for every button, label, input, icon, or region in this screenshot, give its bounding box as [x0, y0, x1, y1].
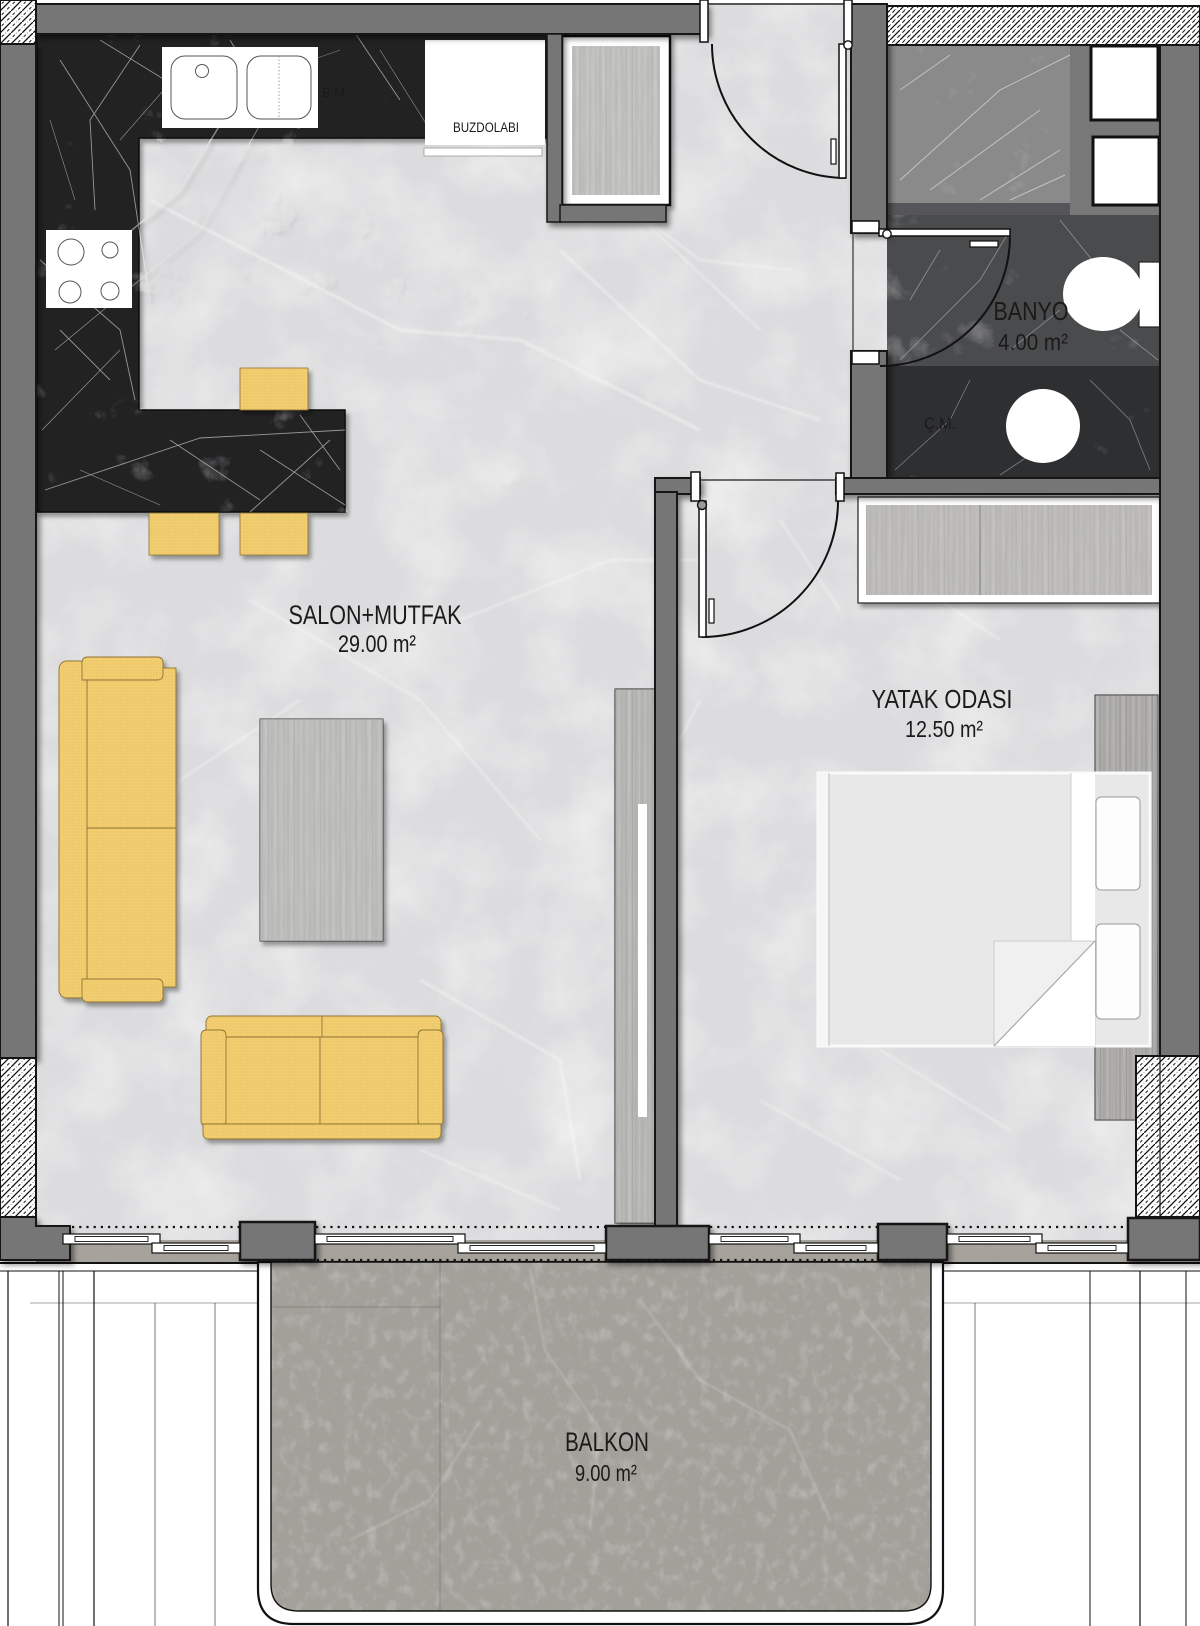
- svg-text:Ç.M.: Ç.M.: [924, 414, 956, 433]
- svg-text:12.50 m²: 12.50 m²: [905, 716, 983, 742]
- svg-text:4.00 m²: 4.00 m²: [998, 329, 1068, 355]
- svg-text:BALKON: BALKON: [565, 1427, 649, 1457]
- svg-text:SALON+MUTFAK: SALON+MUTFAK: [289, 600, 462, 630]
- svg-text:BANYO: BANYO: [994, 296, 1069, 326]
- svg-text:BUZDOLABI: BUZDOLABI: [453, 120, 519, 135]
- svg-text:B.M: B.M: [322, 85, 345, 100]
- svg-text:9.00 m²: 9.00 m²: [575, 1460, 637, 1486]
- svg-text:YATAK ODASI: YATAK ODASI: [872, 686, 1013, 714]
- svg-text:29.00 m²: 29.00 m²: [338, 631, 416, 658]
